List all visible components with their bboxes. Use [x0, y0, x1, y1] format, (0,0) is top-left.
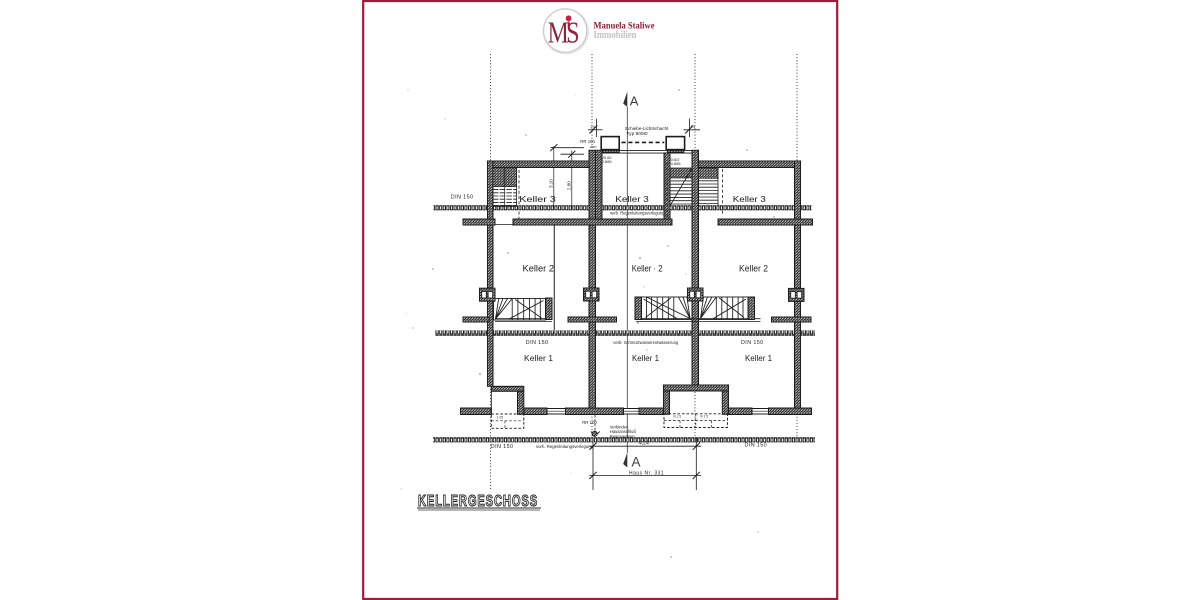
svg-text:24: 24: [691, 124, 696, 129]
svg-text:Keller 3: Keller 3: [733, 194, 766, 204]
svg-text:DIN 150: DIN 150: [745, 442, 768, 448]
svg-text:Keller 2: Keller 2: [523, 263, 555, 274]
svg-text:A: A: [632, 455, 641, 470]
svg-text:Keller 2: Keller 2: [739, 263, 768, 274]
svg-text:1.05: 1.05: [497, 415, 503, 419]
svg-text:24: 24: [591, 124, 596, 129]
svg-text:Keller 3: Keller 3: [519, 194, 556, 204]
svg-text:vorn: vorn: [590, 145, 597, 149]
svg-text:Regenwasser: Regenwasser: [610, 434, 636, 439]
svg-text:m 1.5: m 1.5: [700, 415, 708, 419]
svg-text:vorh. Regenleitungsverlegung: vorh. Regenleitungsverlegung: [536, 444, 594, 449]
svg-text:DIN 150: DIN 150: [741, 340, 764, 346]
svg-text:2.80: 2.80: [567, 181, 572, 190]
svg-text:Keller 1: Keller 1: [632, 353, 659, 363]
svg-text:Haus Nr. 331: Haus Nr. 331: [629, 470, 664, 476]
svg-text:4,24: 4,24: [639, 441, 649, 447]
svg-text:Schiebe-Lichtschacht: Schiebe-Lichtschacht: [625, 126, 669, 131]
svg-text:3.10: 3.10: [549, 179, 554, 188]
svg-text:DIN 150: DIN 150: [451, 194, 474, 200]
svg-text:Keller 1: Keller 1: [745, 353, 772, 363]
svg-text:DIN 150: DIN 150: [526, 340, 549, 346]
svg-text:verb. Regenleitungsverlegung: verb. Regenleitungsverlegung: [610, 211, 665, 216]
svg-text:A: A: [630, 94, 639, 109]
svg-text:Keller · 2: Keller · 2: [632, 263, 663, 274]
svg-text:Typ 80/80: Typ 80/80: [627, 131, 648, 137]
svg-text:RR 100: RR 100: [580, 139, 595, 144]
svg-text:0.865: 0.865: [671, 161, 681, 166]
svg-text:KELLERGESCHOSS: KELLERGESCHOSS: [418, 493, 538, 510]
svg-text:Keller 1: Keller 1: [524, 353, 553, 363]
svg-text:Immobilien: Immobilien: [594, 30, 637, 41]
svg-text:Keller 3: Keller 3: [615, 194, 649, 204]
svg-text:0.865: 0.865: [602, 159, 612, 164]
svg-text:DIN 150: DIN 150: [491, 444, 514, 450]
svg-text:verb- Schmutzwasserentwässerun: verb- Schmutzwasserentwässerung: [613, 340, 679, 345]
svg-text:m 1.5: m 1.5: [673, 415, 681, 419]
